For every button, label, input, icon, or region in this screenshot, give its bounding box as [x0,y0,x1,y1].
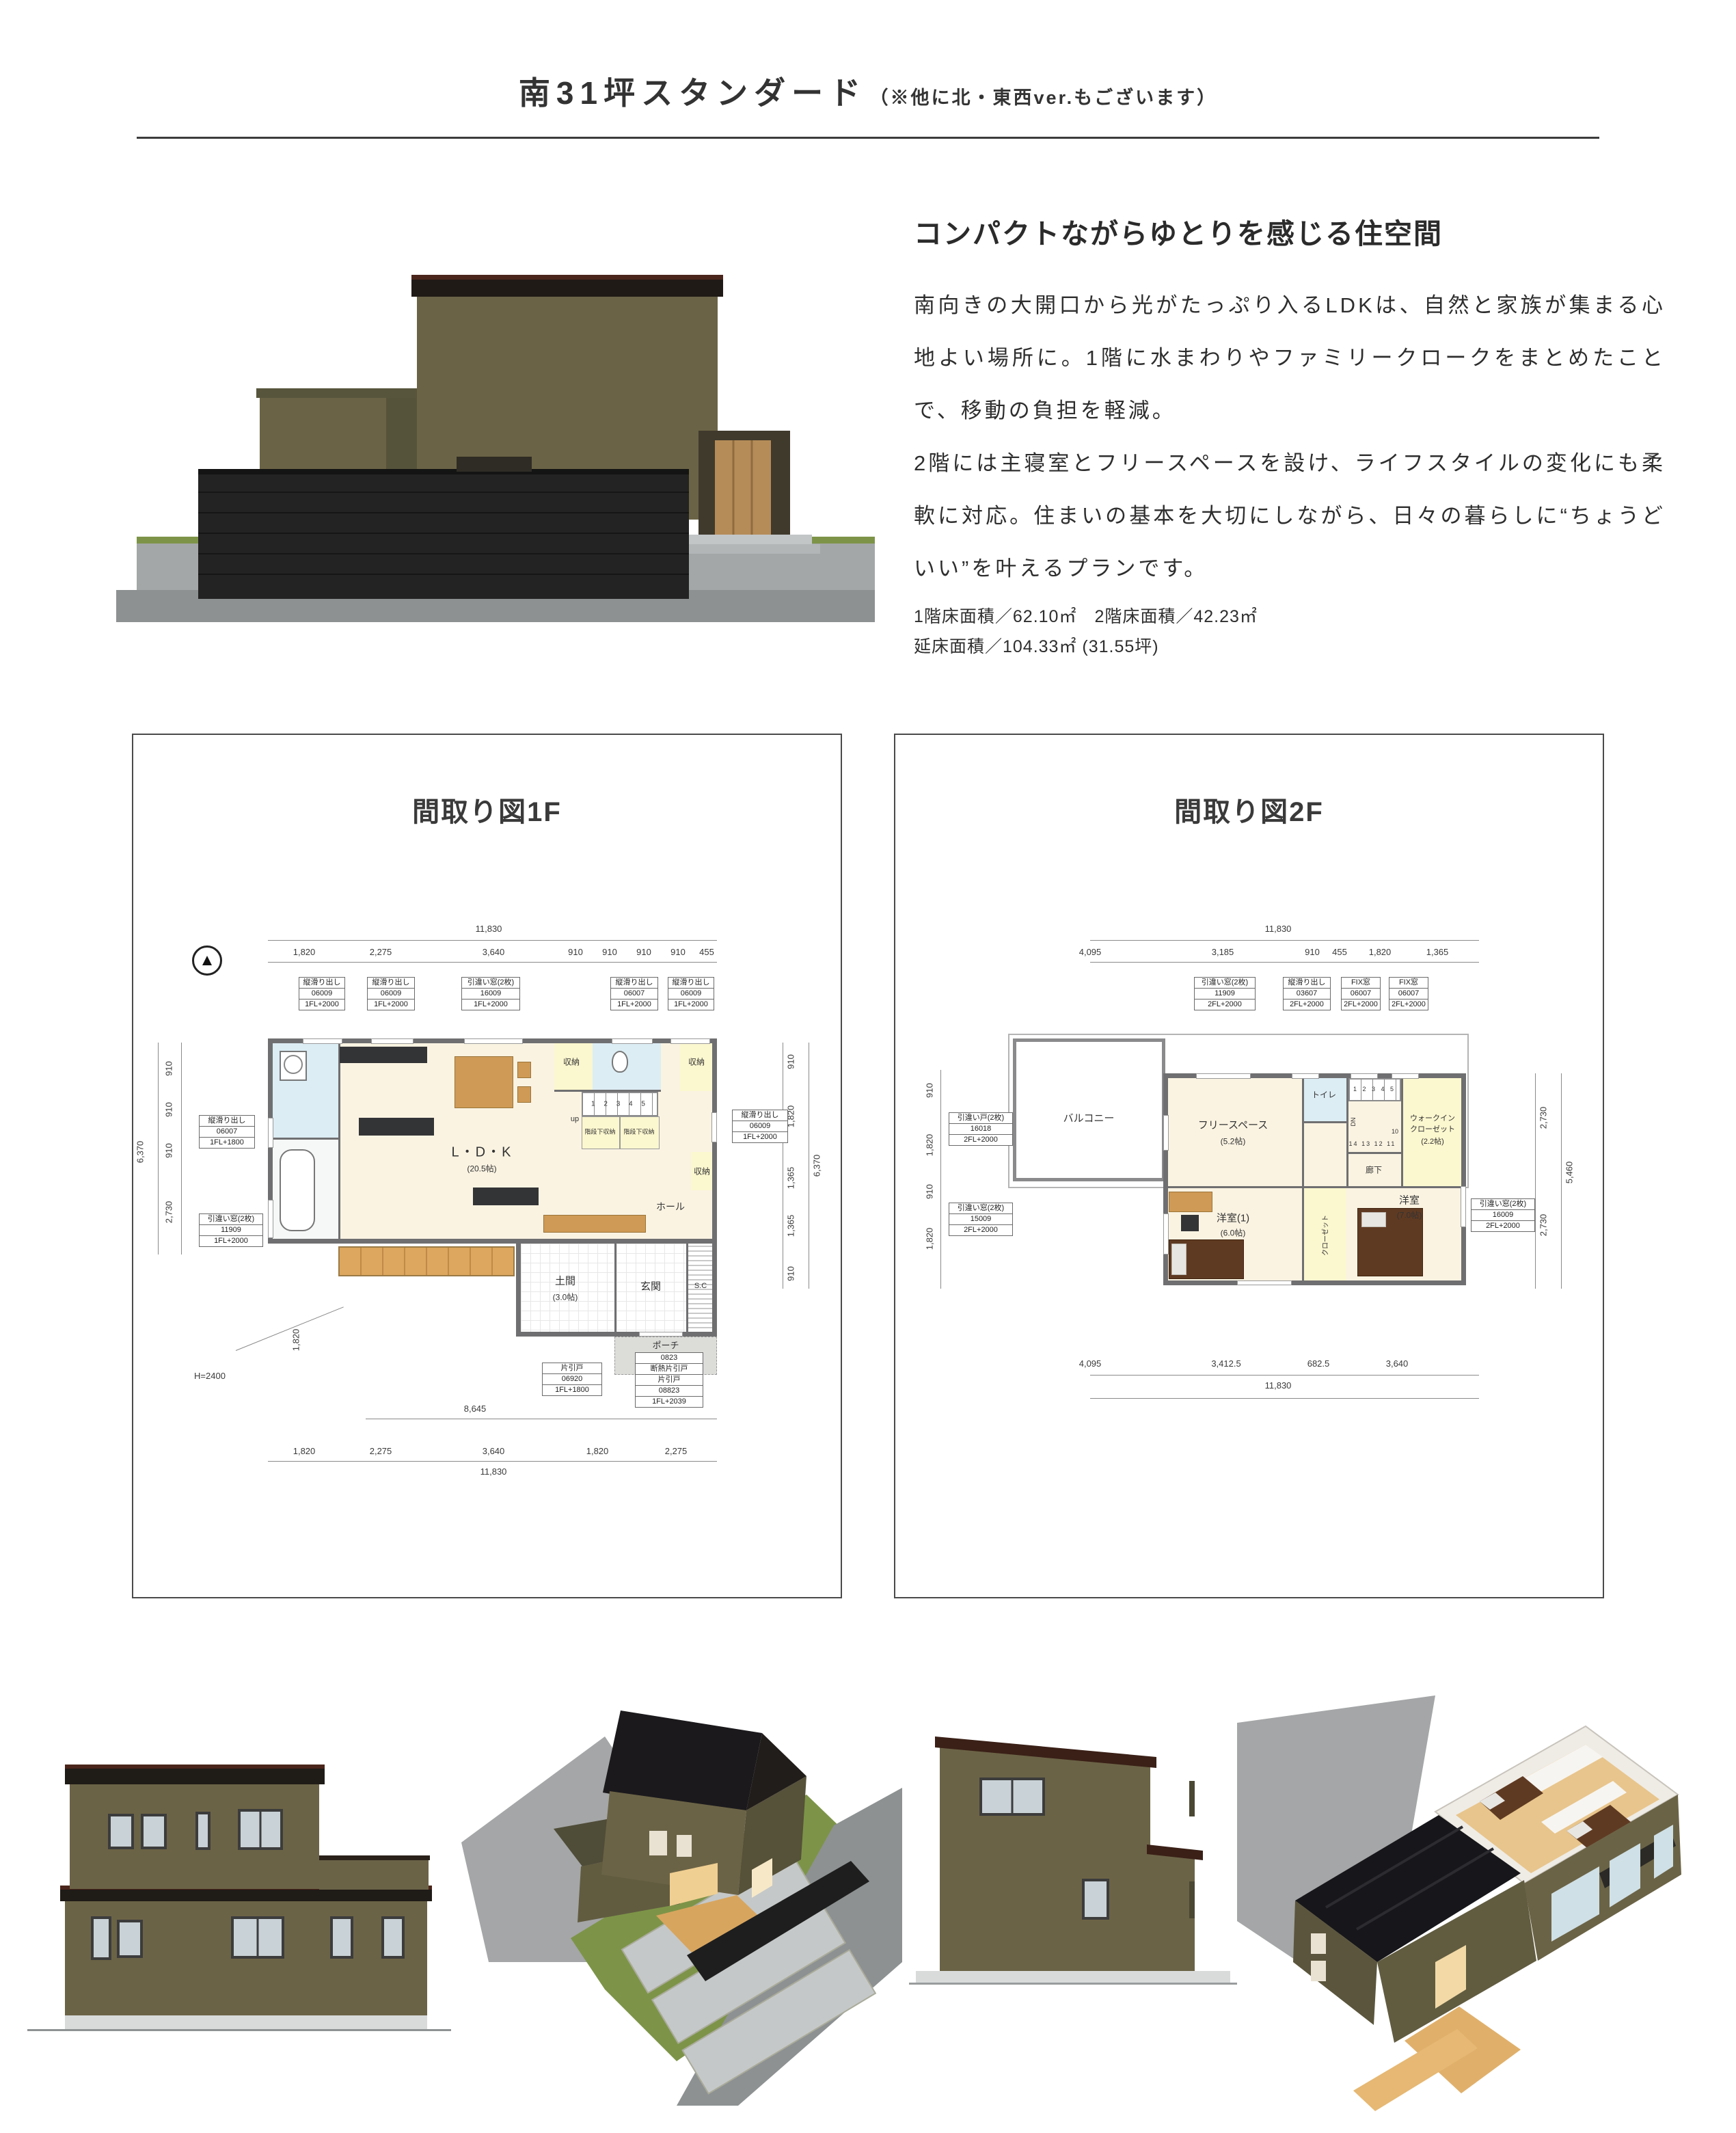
window-gap [1163,1115,1169,1151]
dim-seg: 4,095 [1079,1358,1102,1369]
plan1f-title: 間取り図1F [133,790,841,829]
interior-wall [1302,1121,1348,1123]
interior-wall [338,1043,340,1239]
area-line-1: 1階床面積／62.10㎡ 2階床面積／42.23㎡ [914,602,1258,632]
dim-line [1090,940,1479,941]
dim-seg: 2,275 [665,1446,688,1456]
render-front-elevation-svg [116,226,875,622]
dim-line [158,1043,159,1255]
window-gap [1163,1213,1169,1255]
window-spec: 引違い戸(2枚)160182FL+2000 [949,1112,1013,1146]
dim-seg: 910 [1305,947,1320,957]
dim-seg: 1,820 [293,947,316,957]
room-label-wic: ウォークイン [1410,1112,1455,1123]
window-gap [303,1038,342,1044]
wood-deck [338,1246,515,1276]
bathtub-icon [280,1149,315,1231]
window-gap [464,1038,523,1044]
dim-seg: 3,640 [483,947,505,957]
window-spec: 引違い窓(2枚)150092FL+2000 [949,1203,1013,1236]
dim-line [1090,962,1479,963]
floorplan-1f-card: 間取り図1F ▲ 11,830 1,820 2,275 3,640 910 91… [132,734,842,1598]
dining-table [455,1056,513,1108]
render-side-elevation-a-svg [27,1695,451,2078]
dim-seg: 910 [925,1184,935,1199]
toilet-icon [612,1051,628,1073]
window-spec: 縦滑り出し036072FL+2000 [1283,977,1331,1010]
room-size-room2: (7.0帖) [1397,1209,1422,1221]
dim-seg: 455 [699,947,714,957]
render-side-elevation-a [27,1695,451,2078]
dim-seg: 3,185 [1212,947,1234,957]
brochure-page: 南31坪スタンダード （※他に北・東西ver.もございます） [0,0,1736,2133]
dim-line [1090,1375,1479,1376]
room-label-sc: S.C [694,1282,707,1290]
dim-seg: 3,640 [1386,1358,1409,1369]
dim-seg: 1,365 [786,1215,796,1237]
bed-pillow [1361,1212,1386,1227]
hero-paragraph-1: 南向きの大開口から光がたっぷり入るLDKは、自然と家族が集まる心地よい場所に。1… [914,279,1666,437]
window-gap [371,1038,413,1044]
dim-line [809,1043,809,1289]
dim-total-right: 5,460 [1564,1162,1575,1184]
dim-total-right: 6,370 [812,1155,822,1177]
window-spec: 引違い窓(2枚)160091FL+2000 [461,977,520,1010]
render-aerial-exterior [451,1668,902,2106]
window-spec: 縦滑り出し060091FL+2000 [668,977,714,1010]
dim-line [366,1419,717,1419]
room-label-ldk: L・D・K [452,1141,513,1161]
window-gap [1237,1280,1292,1285]
window-spec: 引違い窓(2枚)160092FL+2000 [1471,1198,1535,1232]
stair-numbers-top: 1 2 3 4 5 [1353,1086,1396,1092]
balcony-area [1013,1038,1165,1181]
page-title-text: 南31坪スタンダード [519,75,867,111]
render-aerial-cutaway-svg [1230,1668,1709,2119]
interior-wall [273,1138,338,1140]
tv-board [473,1188,539,1205]
room-size-ldk: (20.5帖) [467,1163,496,1175]
doma-area [521,1244,614,1332]
header-rule [137,137,1599,139]
room-size-wic: (2.2帖) [1421,1136,1444,1146]
room-size-room1: (6.0帖) [1221,1227,1246,1239]
desk-chair [1181,1215,1199,1231]
north-arrow-icon: ▲ [192,945,222,976]
window-gap [268,1118,273,1148]
dim-total-top: 11,830 [476,924,502,934]
render-front-elevation [116,226,875,622]
dim-line [181,1043,182,1255]
window-gap [1196,1073,1251,1079]
window-gap [670,1038,710,1044]
window-gap [1292,1073,1319,1079]
dim-seg: 910 [164,1061,174,1076]
dim-seg: 2,730 [1538,1214,1549,1237]
dim-seg: 910 [568,947,583,957]
dim-seg: 910 [786,1054,796,1069]
render-side-elevation-b [909,1702,1237,2085]
dim-seg: 1,365 [786,1167,796,1190]
stair-dn-label: DN [1350,1118,1357,1127]
dining-chair [517,1086,531,1103]
hero-paragraph-2: 2階には主寝室とフリースペースを設け、ライフスタイルの変化にも柔軟に対応。住まい… [914,437,1666,595]
room-size-doma: (3.0帖) [553,1291,578,1303]
dim-seg: 1,365 [1426,947,1449,957]
stair-numbers-bottom: 14 13 12 11 [1349,1140,1396,1147]
window-spec: 縦滑り出し060091FL+2000 [732,1110,788,1143]
dim-seg: 682.5 [1307,1358,1330,1369]
dim-seg: 1,820 [293,1446,316,1456]
room-label-storage: 収納 [563,1056,580,1068]
dim-line [268,1461,717,1462]
dim-line [783,1043,783,1289]
page-title: 南31坪スタンダード （※他に北・東西ver.もございます） [0,68,1736,113]
dim-total-left: 6,370 [135,1141,146,1164]
room-label-freespace: フリースペース [1198,1118,1268,1132]
stair-up-label: up [571,1115,579,1123]
dim-seg: 2,730 [1538,1107,1549,1129]
floorplan-2f-card: 間取り図2F 11,830 4,095 3,185 910 455 1,820 … [894,734,1604,1598]
dim-line [1561,1073,1562,1289]
interior-wall [1346,1152,1403,1154]
room-label-closet: クローゼット [1320,1215,1330,1256]
dim-seg: 3,412.5 [1211,1358,1240,1369]
dim-line [268,962,717,963]
dim-seg: 1,820 [1369,947,1392,957]
dim-seg: 2,275 [370,1446,392,1456]
room-label-corridor: 廊下 [1366,1164,1382,1176]
page-title-note: （※他に北・東西ver.もございます） [870,88,1218,108]
room-label-storage: 収納 [688,1056,705,1068]
hero-paragraphs: 南向きの大開口から光がたっぷり入るLDKは、自然と家族が集まる心地よい場所に。1… [914,279,1666,595]
dim-seg: 4,095 [1079,947,1102,957]
dim-seg: 3,640 [483,1446,505,1456]
dim-line [940,1070,941,1289]
dim-mid-bottom: 8,645 [464,1404,487,1414]
window-spec: 縦滑り出し060091FL+2000 [299,977,345,1010]
window-spec: 引違い窓(2枚)119091FL+2000 [199,1213,263,1247]
dim-seg: 910 [164,1143,174,1158]
desk [1169,1192,1212,1212]
room-label-toilet: トイレ [1312,1089,1336,1101]
dim-seg: 910 [670,947,686,957]
room-label-genkan: 玄関 [640,1279,661,1293]
room-label-room2: 洋室 [1399,1193,1420,1207]
room-label-room1: 洋室(1) [1217,1211,1249,1225]
dim-seg: 1,820 [291,1329,301,1352]
dim-seg: 2,730 [164,1201,174,1224]
dim-line [1090,1398,1479,1399]
window-spec: 縦滑り出し060071FL+2000 [610,977,658,1010]
window-gap [612,1038,653,1044]
area-line-2: 延床面積／104.33㎡ (31.55坪) [914,632,1258,662]
door-gap [639,1332,683,1337]
dim-line [268,940,717,941]
interior-wall [1302,1078,1304,1280]
room-label-hall: ホール [656,1200,685,1213]
under-stair-storage-label: 階段下収納 [622,1127,656,1136]
window-spec: FIX窓060072FL+2000 [1389,977,1428,1010]
dim-total-top: 11,830 [1265,924,1292,934]
interior-wall [1401,1078,1403,1186]
door-spec: 片引戸069201FL+1800 [542,1363,602,1396]
kitchen-counter [340,1047,427,1063]
under-stair-storage-label: 階段下収納 [583,1127,617,1136]
dim-seg: 910 [786,1266,796,1281]
window-gap [1461,1186,1466,1227]
window-spec: FIX窓060072FL+2000 [1341,977,1381,1010]
dim-seg: 910 [602,947,617,957]
dim-line [1535,1073,1536,1289]
plan2f-title: 間取り図2F [895,790,1603,829]
stair-number-mid: 10 [1392,1128,1398,1135]
stair-numbers: 1 2 3 4 5 [591,1101,649,1108]
bench [543,1215,646,1233]
room-label-storage: 収納 [694,1166,710,1177]
render-aerial-exterior-svg [451,1668,902,2106]
window-gap [268,1200,273,1238]
dim-seg: 1,820 [925,1228,935,1250]
dim-seg: 910 [636,947,651,957]
window-spec: 縦滑り出し060091FL+2000 [367,977,415,1010]
dim-seg: 910 [164,1102,174,1117]
render-aerial-cutaway [1230,1668,1709,2119]
dining-chair [517,1062,531,1078]
interior-wall [686,1244,688,1332]
window-gap [1392,1073,1419,1079]
render-side-elevation-b-svg [909,1702,1237,2085]
dim-total-bottom: 11,830 [1265,1380,1292,1391]
dim-total-bottom: 11,830 [480,1466,507,1477]
interior-wall [1168,1186,1461,1188]
hero-heading: コンパクトながらゆとりを感じる住空間 [914,211,1443,252]
room-label-doma: 土間 [555,1274,575,1288]
room-label-wic: クローゼット [1410,1123,1455,1134]
floor-area-summary: 1階床面積／62.10㎡ 2階床面積／42.23㎡ 延床面積／104.33㎡ (… [914,602,1258,662]
washer-drum-icon [284,1055,303,1074]
height-note: H=2400 [194,1371,226,1381]
dim-seg: 2,275 [370,947,392,957]
dim-seg: 910 [925,1083,935,1098]
room-label-porch: ポーチ [652,1339,679,1352]
bed-pillow [1171,1244,1186,1275]
window-gap [1351,1073,1378,1079]
room-label-balcony: バルコニー [1063,1111,1115,1125]
window-spec: 引違い窓(2枚)119092FL+2000 [1194,977,1256,1010]
kitchen-island [359,1118,434,1136]
room-size-freespace: (5.2帖) [1221,1136,1246,1147]
dim-seg: 455 [1332,947,1347,957]
dim-seg: 1,820 [925,1134,935,1157]
leader-line [236,1306,344,1351]
window-spec: 縦滑り出し060071FL+1800 [199,1115,255,1149]
interior-wall [614,1244,616,1332]
dim-seg: 1,820 [586,1446,609,1456]
door-spec: 0823断熱片引戸片引戸088231FL+2039 [635,1352,703,1408]
window-gap [711,1112,717,1142]
